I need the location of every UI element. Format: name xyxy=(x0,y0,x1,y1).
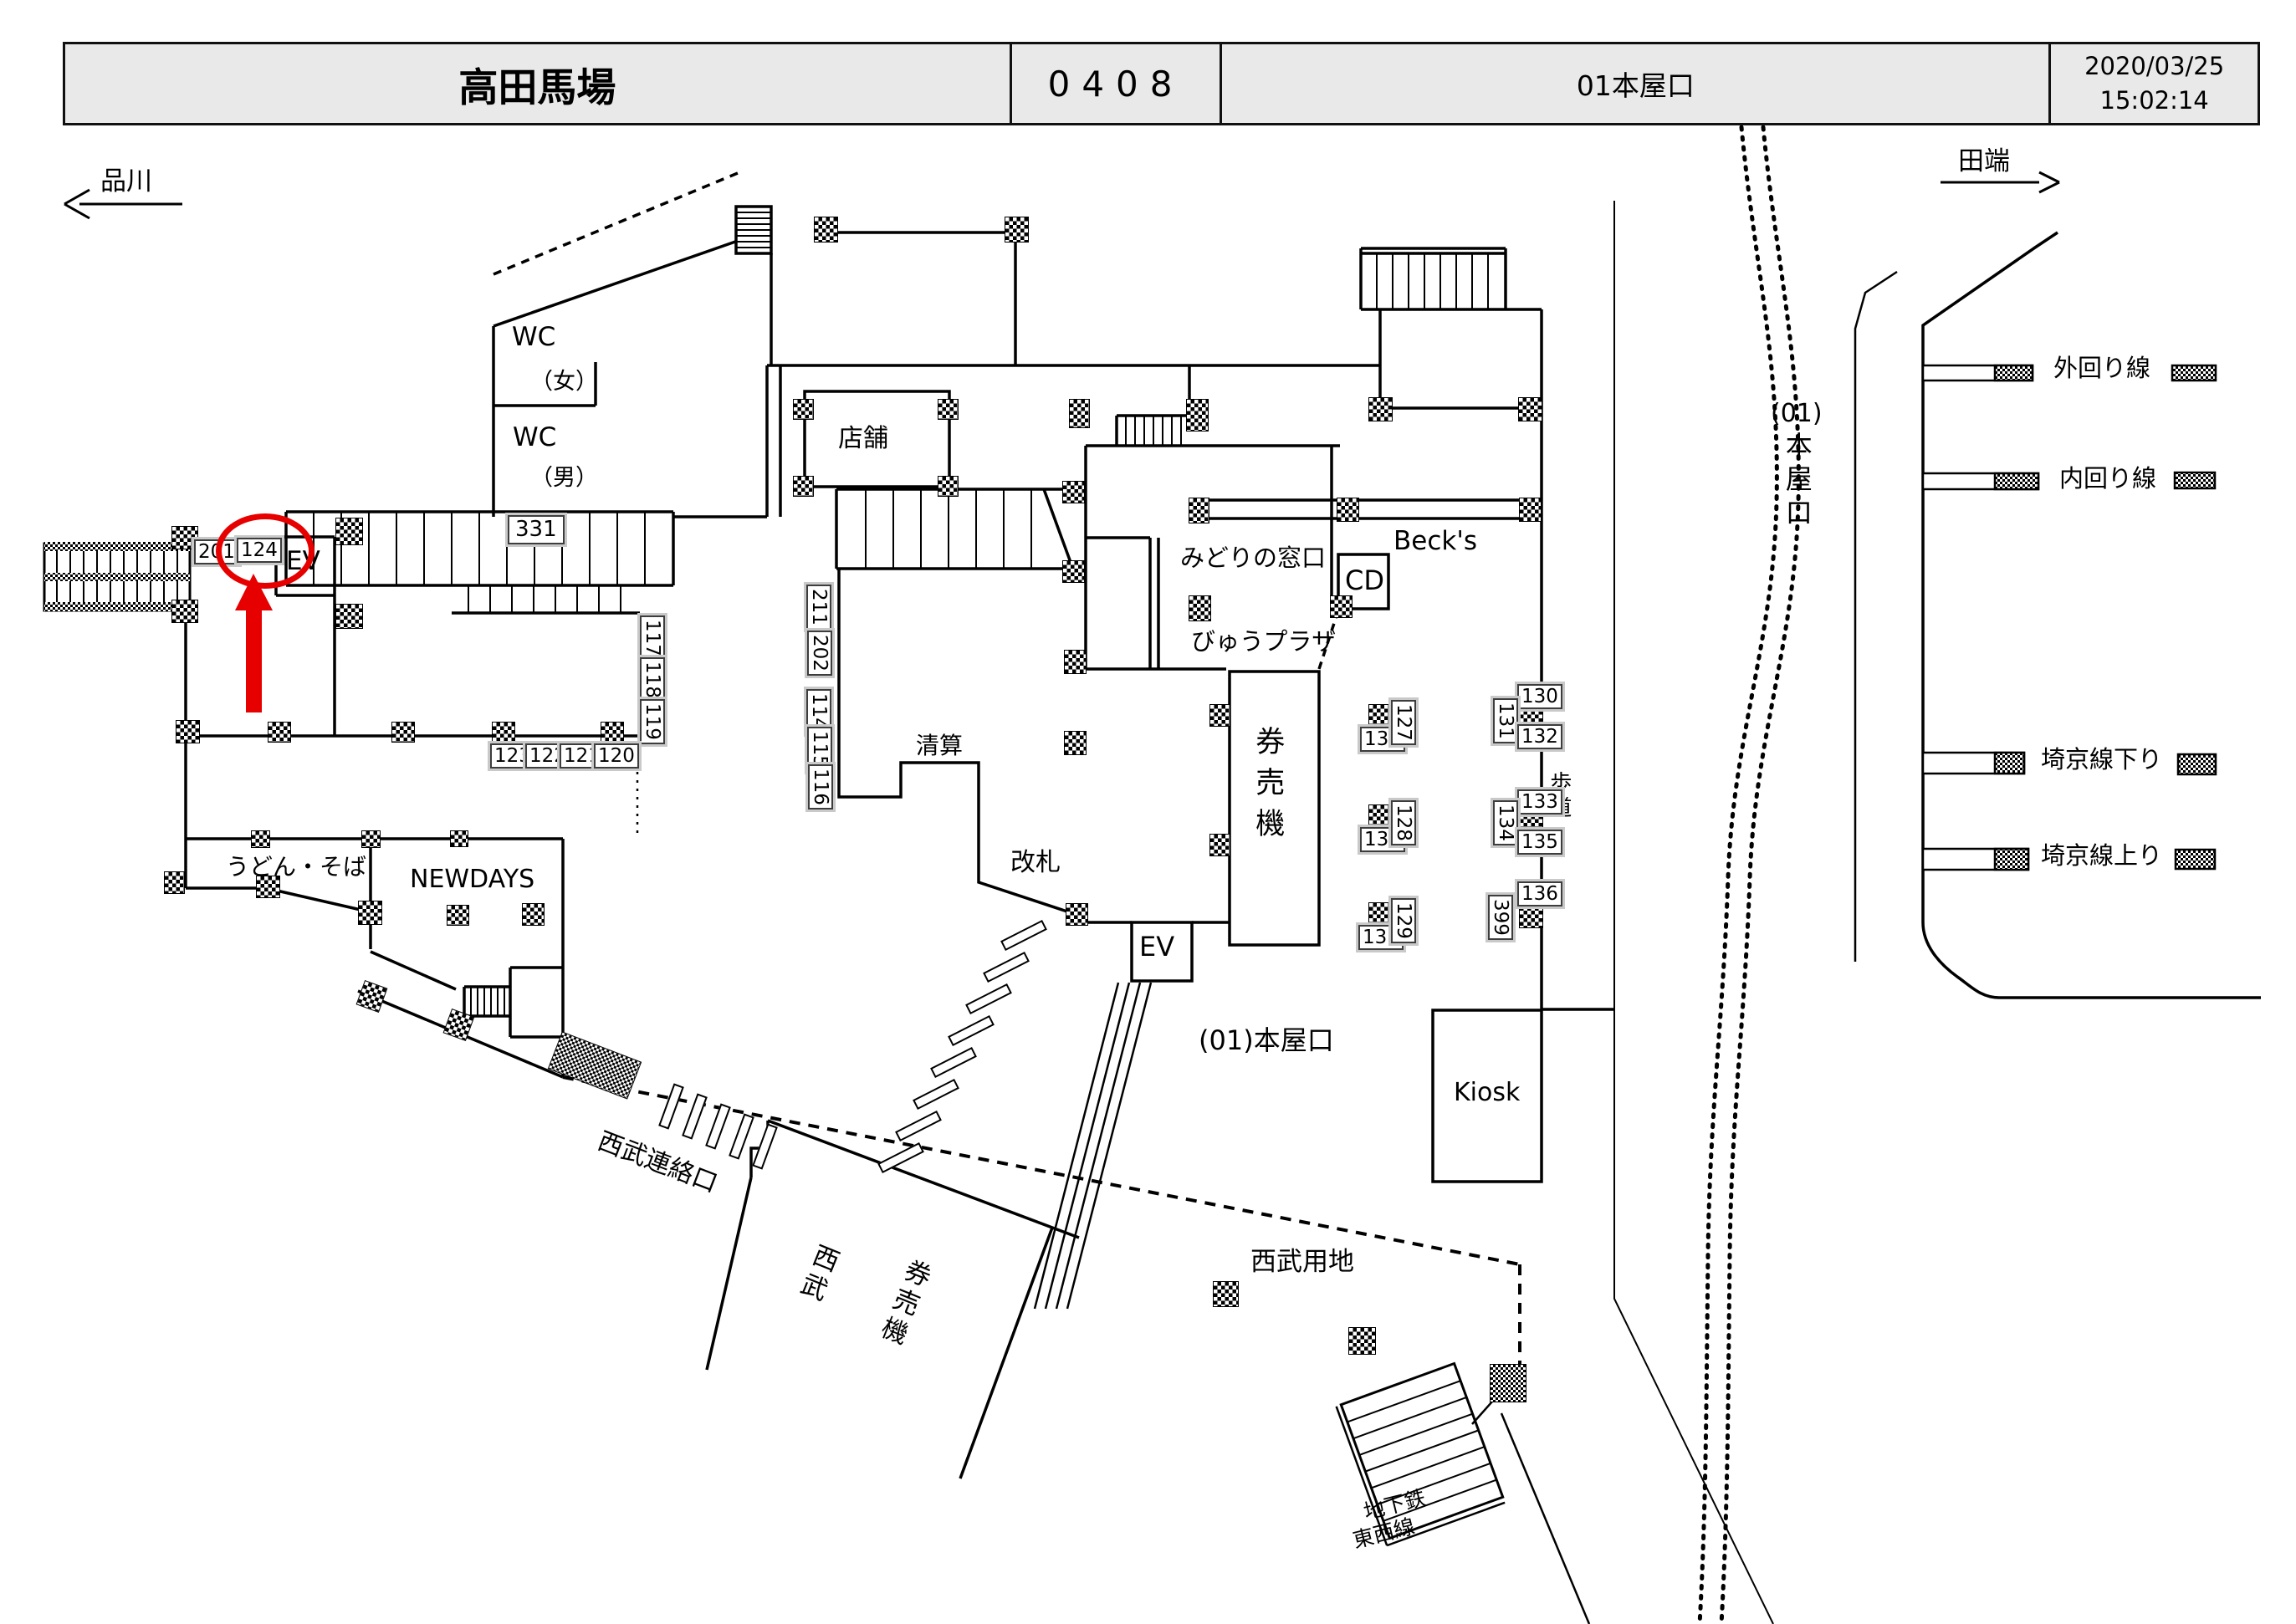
label-kaisatsu: 改札 xyxy=(1010,849,1061,878)
room-cd: CD xyxy=(1345,565,1384,596)
pillar xyxy=(1368,704,1391,728)
camera-tag-399[interactable]: 399 xyxy=(1488,895,1513,940)
pillar xyxy=(447,905,469,926)
room-tenpo: 店舗 xyxy=(838,425,888,454)
track-label-saikyo-down: 埼京線下り xyxy=(2041,746,2162,774)
pillar xyxy=(1189,498,1209,523)
camera-tag-119[interactable]: 119 xyxy=(640,699,665,744)
track-label-sotomawari: 外回り線 xyxy=(2053,355,2150,382)
room-wc-women-sub: （女） xyxy=(530,369,598,395)
pillar xyxy=(1005,217,1029,243)
pillar xyxy=(1368,397,1393,421)
camera-tag-331[interactable]: 331 xyxy=(508,515,565,544)
pillar xyxy=(793,399,814,420)
track-bars xyxy=(1923,365,2216,870)
station-name: 高田馬場 xyxy=(65,44,1010,123)
floorplan-linework xyxy=(0,0,2296,1624)
map-code: 0408 xyxy=(1010,44,1223,123)
pillar xyxy=(1337,498,1359,522)
camera-tag-116[interactable]: 116 xyxy=(808,764,833,809)
time-text: 15:02:14 xyxy=(2100,84,2209,118)
pillar xyxy=(164,871,185,894)
pillar xyxy=(1368,902,1391,927)
room-newdays: NEWDAYS xyxy=(410,866,534,895)
camera-tag-128[interactable]: 128 xyxy=(1391,800,1416,845)
room-udon-soba: うどん・そば xyxy=(226,854,366,881)
pillar xyxy=(1518,397,1542,421)
pillar xyxy=(522,903,545,926)
pillar xyxy=(1062,560,1085,583)
room-ev-gate: EV xyxy=(1139,932,1174,963)
direction-shinagawa: 品川 xyxy=(100,167,152,197)
camera-tag-120[interactable]: 120 xyxy=(594,743,639,769)
pillar xyxy=(335,604,363,629)
pillar xyxy=(450,830,468,847)
camera-tag-202[interactable]: 202 xyxy=(807,631,832,676)
camera-tag-117[interactable]: 117 xyxy=(640,615,665,661)
label-seisan: 清算 xyxy=(916,733,963,759)
label-seibu-yochi: 西武用地 xyxy=(1250,1248,1354,1278)
pillar xyxy=(1069,399,1090,428)
pillar xyxy=(335,518,363,545)
pillar xyxy=(938,476,959,497)
camera-tag-129[interactable]: 129 xyxy=(1391,898,1416,943)
station-map-screen: 高田馬場 0408 01本屋口 2020/03/25 15:02:14 xyxy=(0,0,2296,1624)
direction-tabata: 田端 xyxy=(1958,147,2010,177)
highlight-ellipse xyxy=(216,513,314,589)
camera-tag-211[interactable]: 211 xyxy=(806,585,831,630)
pillar xyxy=(1213,1281,1239,1307)
room-wc-men: WC xyxy=(513,423,556,453)
label-honyaguchi-v-body: 本屋口 xyxy=(1782,432,1813,532)
pillar xyxy=(1519,498,1542,522)
pillar xyxy=(361,830,381,848)
camera-tag-118[interactable]: 118 xyxy=(640,657,665,702)
camera-tag-133[interactable]: 133 xyxy=(1517,789,1562,815)
pillar xyxy=(601,722,624,743)
track-label-saikyo-up: 埼京線上り xyxy=(2041,842,2162,870)
pillar xyxy=(1330,595,1353,618)
label-honyaguchi: (01)本屋口 xyxy=(1199,1025,1334,1056)
camera-tag-132[interactable]: 132 xyxy=(1517,724,1562,749)
camera-tag-136[interactable]: 136 xyxy=(1517,881,1562,906)
pillar xyxy=(814,217,838,243)
label-honyaguchi-v-head: (01) xyxy=(1771,400,1823,429)
track-label-uchimawari: 内回り線 xyxy=(2059,465,2156,493)
room-wc-men-sub: （男） xyxy=(530,465,598,491)
pillar xyxy=(176,720,200,743)
pillar xyxy=(358,901,382,925)
room-wc-women: WC xyxy=(512,323,555,353)
pillar xyxy=(1062,481,1085,503)
camera-tag-134[interactable]: 134 xyxy=(1493,800,1518,845)
camera-tag-130[interactable]: 130 xyxy=(1517,684,1562,709)
pillar xyxy=(793,476,814,497)
pillar xyxy=(251,830,270,848)
datetime: 2020/03/25 15:02:14 xyxy=(2048,44,2258,123)
header-bar: 高田馬場 0408 01本屋口 2020/03/25 15:02:14 xyxy=(63,42,2260,125)
pillar xyxy=(391,722,415,743)
pillar xyxy=(171,600,198,623)
pillar xyxy=(938,399,959,420)
date-text: 2020/03/25 xyxy=(2084,49,2224,84)
pillar xyxy=(1348,1327,1376,1355)
pillar xyxy=(1064,731,1087,755)
pillar xyxy=(1189,595,1211,621)
river-line xyxy=(1700,127,1798,1624)
room-kiosk: Kiosk xyxy=(1454,1079,1520,1108)
pillar xyxy=(1186,399,1209,432)
pillar xyxy=(1209,834,1230,856)
pillar xyxy=(1490,1364,1526,1402)
pillar xyxy=(268,722,291,743)
pillar xyxy=(492,722,515,743)
camera-tag-131[interactable]: 131 xyxy=(1493,698,1518,743)
gate-name: 01本屋口 xyxy=(1222,44,2048,123)
room-becks: Beck's xyxy=(1393,527,1477,557)
room-kenbaiki: 券売機 xyxy=(1250,726,1284,849)
platform-stair-west xyxy=(44,542,190,611)
pillar xyxy=(1066,903,1088,926)
pillar xyxy=(1368,804,1391,829)
camera-tag-127[interactable]: 127 xyxy=(1391,700,1416,745)
room-midori: みどりの窓口 xyxy=(1180,544,1326,572)
room-view-plaza: びゅうプラザ xyxy=(1191,628,1336,656)
pillar xyxy=(1209,704,1230,727)
pillar xyxy=(1064,650,1087,674)
camera-tag-135[interactable]: 135 xyxy=(1517,830,1562,855)
